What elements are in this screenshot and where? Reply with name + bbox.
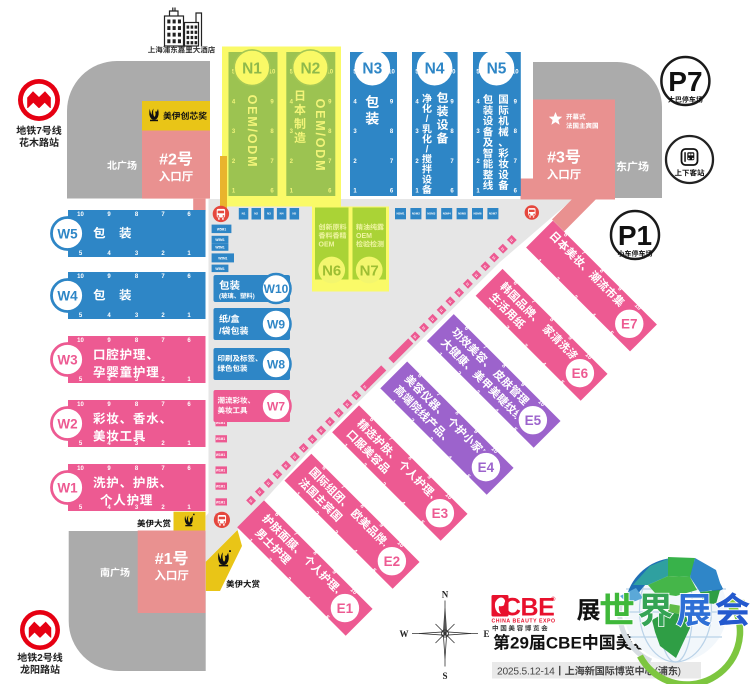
svg-text:W5M1: W5M1 xyxy=(215,246,224,250)
svg-text:上下客站: 上下客站 xyxy=(675,168,705,179)
svg-text:法国主宾国: 法国主宾国 xyxy=(566,120,599,130)
svg-text:东广场: 东广场 xyxy=(616,159,649,175)
svg-text:北广场: 北广场 xyxy=(107,157,137,172)
svg-text:CBE: CBE xyxy=(503,594,554,622)
svg-text:美伊大赏: 美伊大赏 xyxy=(137,518,171,530)
svg-text:#1号: #1号 xyxy=(155,545,189,569)
svg-text:W5M1: W5M1 xyxy=(215,267,224,271)
svg-text:E4: E4 xyxy=(478,460,495,475)
svg-text:N4: N4 xyxy=(280,212,284,216)
svg-text:N5M4: N5M4 xyxy=(443,212,451,216)
svg-text:线: 线 xyxy=(483,178,494,193)
svg-text:孕婴童护理: 孕婴童护理 xyxy=(93,362,160,381)
svg-text:入口厅: 入口厅 xyxy=(159,169,194,185)
svg-text:彩妆、香水、: 彩妆、香水、 xyxy=(93,408,173,427)
svg-text:(玻璃、塑料): (玻璃、塑料) xyxy=(219,291,255,300)
svg-text:W: W xyxy=(400,629,409,639)
svg-text:造: 造 xyxy=(294,129,306,146)
svg-text:N5M6: N5M6 xyxy=(473,212,481,216)
svg-text:N5: N5 xyxy=(292,212,296,216)
svg-text:#3号: #3号 xyxy=(547,144,581,168)
svg-text:N5M3: N5M3 xyxy=(427,212,435,216)
svg-text:包 装: 包 装 xyxy=(93,223,136,242)
svg-text:W5: W5 xyxy=(57,227,78,242)
svg-text:展: 展 xyxy=(676,582,712,634)
svg-text:个人护理: 个人护理 xyxy=(100,490,153,509)
svg-text:E2: E2 xyxy=(384,554,401,569)
svg-text:W1M1: W1M1 xyxy=(216,437,225,441)
svg-text:E6: E6 xyxy=(572,366,589,381)
svg-text:P7: P7 xyxy=(668,66,702,97)
svg-text:上海浦东嘉里大酒店: 上海浦东嘉里大酒店 xyxy=(148,45,216,56)
svg-text:W5M1: W5M1 xyxy=(218,256,227,260)
svg-text:E1: E1 xyxy=(337,601,354,616)
svg-text:会: 会 xyxy=(715,582,750,634)
svg-text:备: 备 xyxy=(422,181,432,196)
svg-text:界: 界 xyxy=(638,582,674,634)
svg-text:南广场: 南广场 xyxy=(100,564,130,579)
svg-text:W4: W4 xyxy=(57,289,78,304)
svg-text:N3: N3 xyxy=(362,60,382,77)
svg-text:#2号: #2号 xyxy=(159,146,193,170)
svg-text:E: E xyxy=(483,629,489,639)
svg-text:美伊大赏: 美伊大赏 xyxy=(226,578,260,590)
svg-text:/袋包装: /袋包装 xyxy=(219,324,249,337)
svg-text:N5M2: N5M2 xyxy=(412,212,420,216)
svg-text:N5: N5 xyxy=(487,60,507,77)
svg-text:洗护、护肤、: 洗护、护肤、 xyxy=(93,472,173,491)
svg-text:®: ® xyxy=(551,596,556,603)
svg-text:W5M1: W5M1 xyxy=(217,227,226,231)
svg-text:大巴停车场: 大巴停车场 xyxy=(668,95,703,105)
svg-text:10: 10 xyxy=(77,466,84,472)
svg-text:10: 10 xyxy=(77,212,84,218)
svg-text:N5M7: N5M7 xyxy=(489,212,497,216)
svg-text:N2: N2 xyxy=(254,212,258,216)
svg-text:W8: W8 xyxy=(267,358,285,372)
svg-text:S: S xyxy=(442,671,447,681)
svg-text:E7: E7 xyxy=(621,317,638,332)
svg-text:W1M1: W1M1 xyxy=(216,500,225,504)
svg-text:备: 备 xyxy=(498,178,509,193)
svg-text:10: 10 xyxy=(77,274,84,280)
svg-text:美妆工具: 美妆工具 xyxy=(93,426,146,445)
svg-text:装: 装 xyxy=(365,109,379,129)
svg-text:入口厅: 入口厅 xyxy=(547,167,582,183)
svg-text:龙阳路站: 龙阳路站 xyxy=(20,661,60,676)
svg-text:小车停车场: 小车停车场 xyxy=(618,249,653,259)
svg-text:E3: E3 xyxy=(432,506,449,521)
svg-text:检验检测: 检验检测 xyxy=(356,240,384,250)
svg-text:N3: N3 xyxy=(267,212,271,216)
svg-text:E5: E5 xyxy=(525,413,542,428)
svg-text:W10: W10 xyxy=(264,282,289,296)
svg-text:W1M1: W1M1 xyxy=(216,468,225,472)
svg-text:OEM/ODM: OEM/ODM xyxy=(313,99,327,173)
svg-text:N6: N6 xyxy=(322,262,341,279)
svg-text:世: 世 xyxy=(599,582,635,634)
svg-text:W2: W2 xyxy=(57,417,77,432)
svg-text:展: 展 xyxy=(577,591,601,626)
svg-text:W3: W3 xyxy=(57,353,78,368)
svg-text:N4: N4 xyxy=(425,60,445,77)
svg-text:W1M1: W1M1 xyxy=(216,453,225,457)
svg-text:10: 10 xyxy=(77,402,84,408)
svg-text:OEM/ODM: OEM/ODM xyxy=(245,95,259,169)
svg-text:10: 10 xyxy=(77,338,84,344)
svg-text:口腔护理、: 口腔护理、 xyxy=(93,344,160,363)
svg-text:入口厅: 入口厅 xyxy=(154,568,189,584)
svg-text:W1M1: W1M1 xyxy=(216,485,225,489)
svg-text:OEM: OEM xyxy=(319,240,335,250)
svg-text:N5M5: N5M5 xyxy=(458,212,466,216)
svg-text:美妆工具: 美妆工具 xyxy=(218,405,248,416)
svg-text:W1: W1 xyxy=(57,481,78,496)
svg-text:P1: P1 xyxy=(618,220,652,251)
svg-text:绿色包装: 绿色包装 xyxy=(218,363,248,374)
svg-text:N: N xyxy=(442,590,449,600)
svg-text:包 装: 包 装 xyxy=(93,285,136,304)
svg-text:W7: W7 xyxy=(267,400,285,414)
svg-text:美伊创芯奖: 美伊创芯奖 xyxy=(163,109,207,122)
svg-text:备: 备 xyxy=(436,130,448,147)
svg-text:N1: N1 xyxy=(242,60,262,77)
svg-text:花木路站: 花木路站 xyxy=(19,134,59,149)
svg-text:W5M1: W5M1 xyxy=(215,238,224,242)
svg-text:N1: N1 xyxy=(242,212,246,216)
svg-text:N7: N7 xyxy=(360,262,379,279)
svg-text:N5M1: N5M1 xyxy=(396,212,404,216)
svg-text:N2: N2 xyxy=(300,60,320,77)
svg-text:W9: W9 xyxy=(267,318,285,332)
